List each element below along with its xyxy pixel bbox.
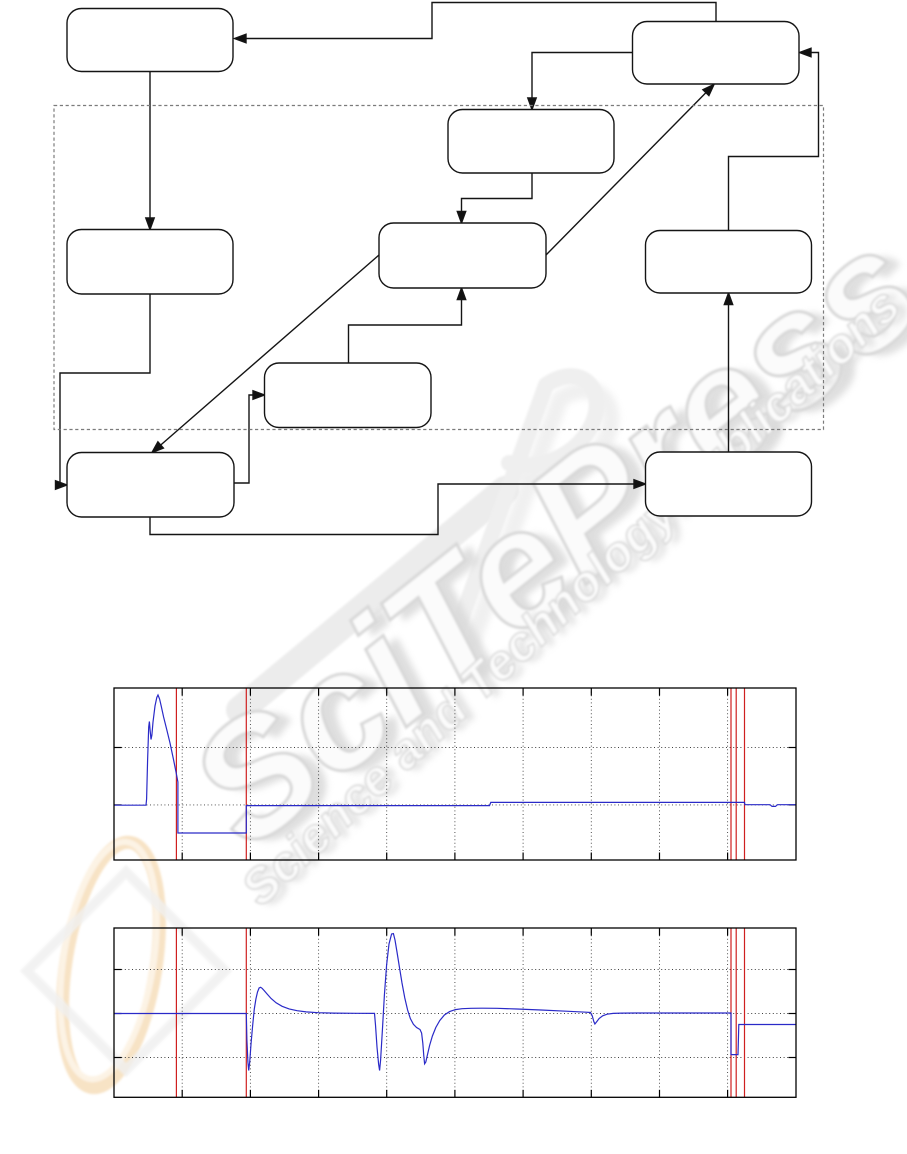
svg-text:SciTePress: SciTePress <box>156 194 907 881</box>
